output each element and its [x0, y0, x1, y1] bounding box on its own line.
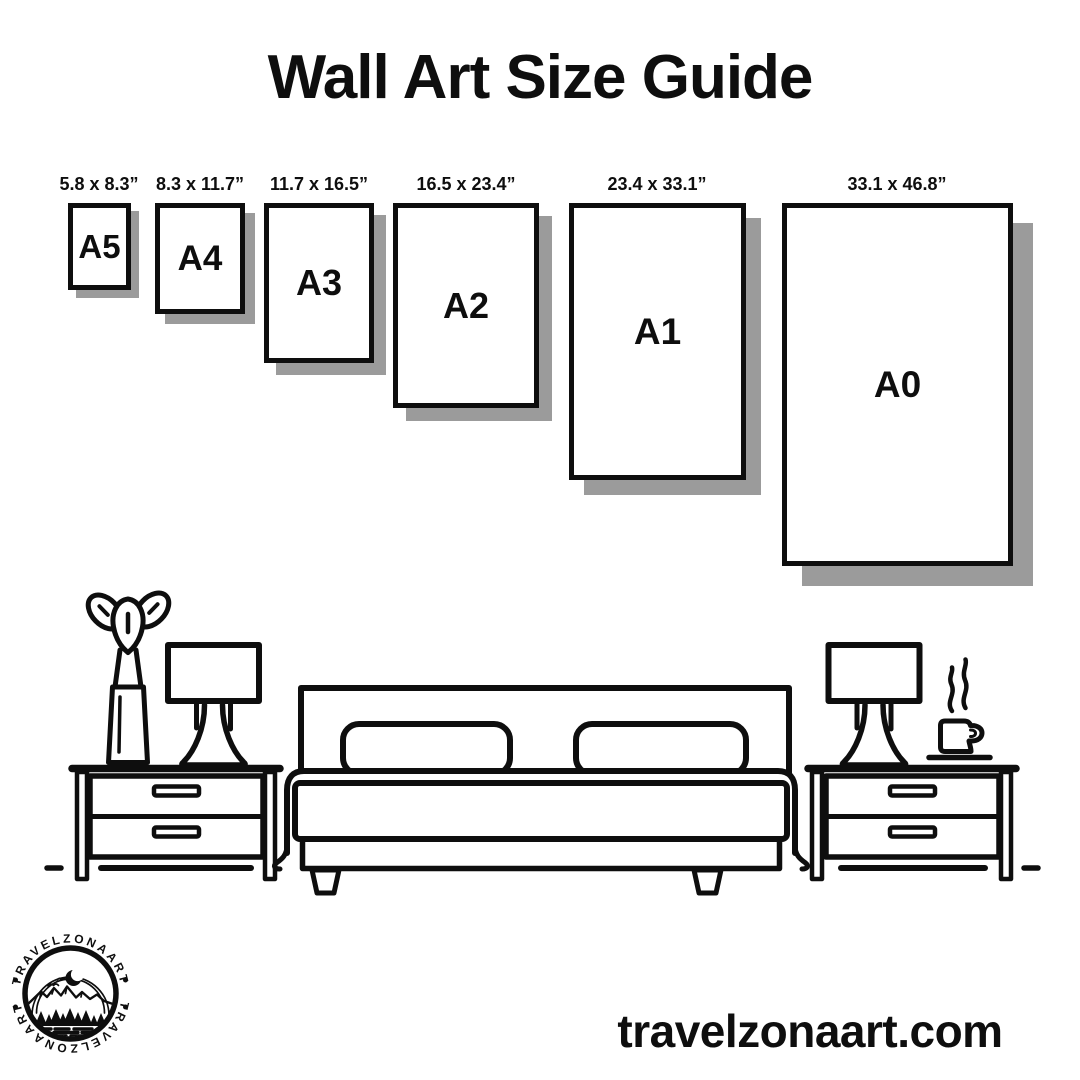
logo-dot — [123, 978, 128, 983]
frame-a3-code: A3 — [296, 262, 342, 304]
frame-a3: A3 — [264, 203, 374, 363]
right-nightstand-icon — [808, 769, 1016, 880]
bedroom-illustration — [0, 585, 1080, 900]
wall-art-size-guide-poster: Wall Art Size Guide 5.8 x 8.3” 8.3 x 11.… — [0, 0, 1080, 1080]
bed-foot-right — [694, 870, 721, 893]
page-title: Wall Art Size Guide — [0, 42, 1080, 113]
logo-dot — [123, 1005, 128, 1010]
website-url: travelzonaart.com — [540, 1004, 1080, 1058]
frame-a0: A0 — [782, 203, 1013, 566]
table-lamp-left-icon — [168, 645, 259, 765]
frame-a0-dims: 33.1 x 46.8” — [817, 172, 977, 196]
blanket-band — [295, 783, 787, 839]
frame-a5: A5 — [68, 203, 131, 290]
frame-a0-code: A0 — [874, 364, 921, 406]
frame-a2: A2 — [393, 203, 539, 408]
frame-a4-code: A4 — [178, 239, 223, 279]
frame-a4: A4 — [155, 203, 245, 314]
frame-a2-dims: 16.5 x 23.4” — [386, 172, 546, 196]
frame-a1-dims: 23.4 x 33.1” — [577, 172, 737, 196]
frame-a1-code: A1 — [634, 311, 681, 353]
logo-dot — [13, 978, 18, 983]
pillow-right — [576, 724, 746, 774]
frame-a2-code: A2 — [443, 285, 489, 327]
logo-dot — [13, 1005, 18, 1010]
bed-foot-left — [312, 870, 339, 893]
frame-a3-dims: 11.7 x 16.5” — [239, 172, 399, 196]
vase-plant-icon — [82, 587, 175, 763]
left-nightstand-icon — [72, 769, 280, 880]
coffee-cup-icon — [929, 660, 990, 758]
frame-a5-code: A5 — [78, 228, 120, 266]
frame-a1: A1 — [569, 203, 746, 480]
travelzonaart-logo: TRAVELZONAART TRAVELZONAART — [0, 925, 150, 1075]
pillow-left — [343, 724, 510, 774]
trees — [28, 1008, 106, 1026]
table-lamp-right-icon — [829, 645, 920, 765]
bed-icon — [275, 688, 808, 893]
